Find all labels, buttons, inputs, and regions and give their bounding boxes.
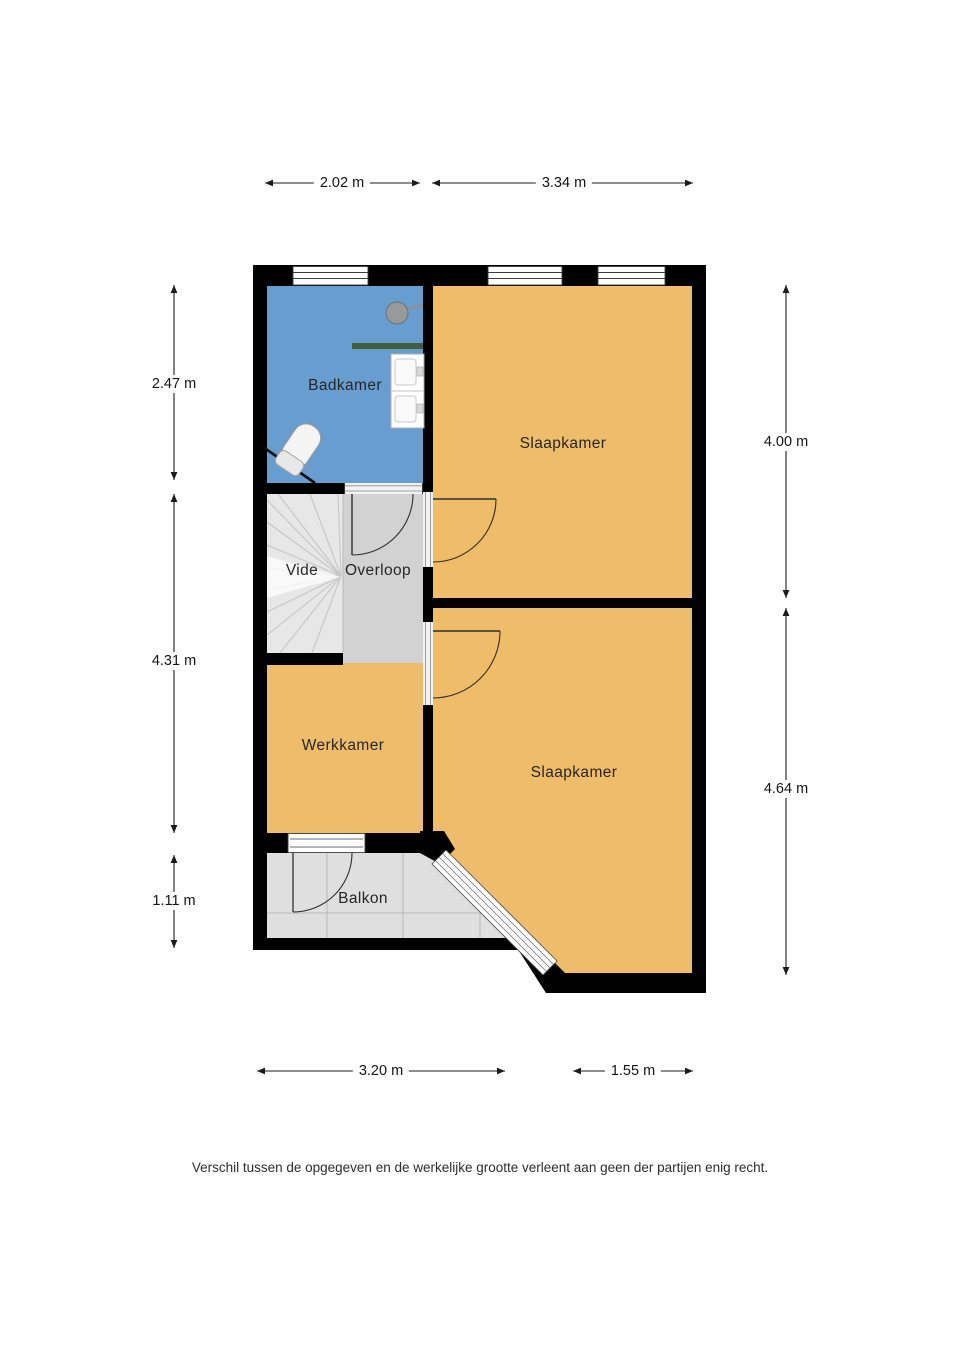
dim-label-top-right: 3.34 m xyxy=(536,174,592,192)
dim-label-left-lower: 1.11 m xyxy=(146,892,201,910)
room-label-balkon: Balkon xyxy=(338,890,388,908)
floorplan-page: Badkamer Slaapkamer Vide Overloop Werkka… xyxy=(0,0,960,1358)
floorplan-drawing xyxy=(0,0,960,1358)
room-label-werkkamer: Werkkamer xyxy=(302,737,385,755)
wall-right xyxy=(692,265,706,993)
wall-werkkamer-bottom-left xyxy=(253,833,288,853)
room-label-overloop: Overloop xyxy=(345,562,411,580)
room-label-vide: Vide xyxy=(286,562,318,580)
dim-label-bottom-right: 1.55 m xyxy=(605,1062,661,1080)
window-badkamer-icon xyxy=(293,267,368,286)
wall-divider-lower xyxy=(423,705,433,843)
room-label-badkamer: Badkamer xyxy=(308,377,382,395)
room-label-slaapkamer-onder: Slaapkamer xyxy=(531,764,618,782)
disclaimer-text: Verschil tussen de opgegeven en de werke… xyxy=(0,1160,960,1175)
dim-label-right-upper: 4.00 m xyxy=(758,433,814,451)
dim-label-left-upper: 2.47 m xyxy=(146,375,202,393)
dim-label-right-lower: 4.64 m xyxy=(758,780,814,798)
room-label-slaapkamer-boven: Slaapkamer xyxy=(520,435,607,453)
bath-shelf-icon xyxy=(352,343,423,349)
wall-vide-bottom xyxy=(253,653,343,665)
wall-divider-middle xyxy=(423,567,433,622)
dim-label-left-middle: 4.31 m xyxy=(146,652,202,670)
dim-label-bottom-left: 3.20 m xyxy=(353,1062,409,1080)
dim-label-top-left: 2.02 m xyxy=(314,174,370,192)
wall-badkamer-bottom xyxy=(253,483,344,494)
window-slaapkamer-2-icon xyxy=(598,267,665,286)
wall-between-bedrooms xyxy=(423,598,692,608)
window-slaapkamer-1-icon xyxy=(488,267,562,286)
wall-balkon-bottom xyxy=(253,938,524,950)
double-washbasin-icon xyxy=(391,354,424,428)
